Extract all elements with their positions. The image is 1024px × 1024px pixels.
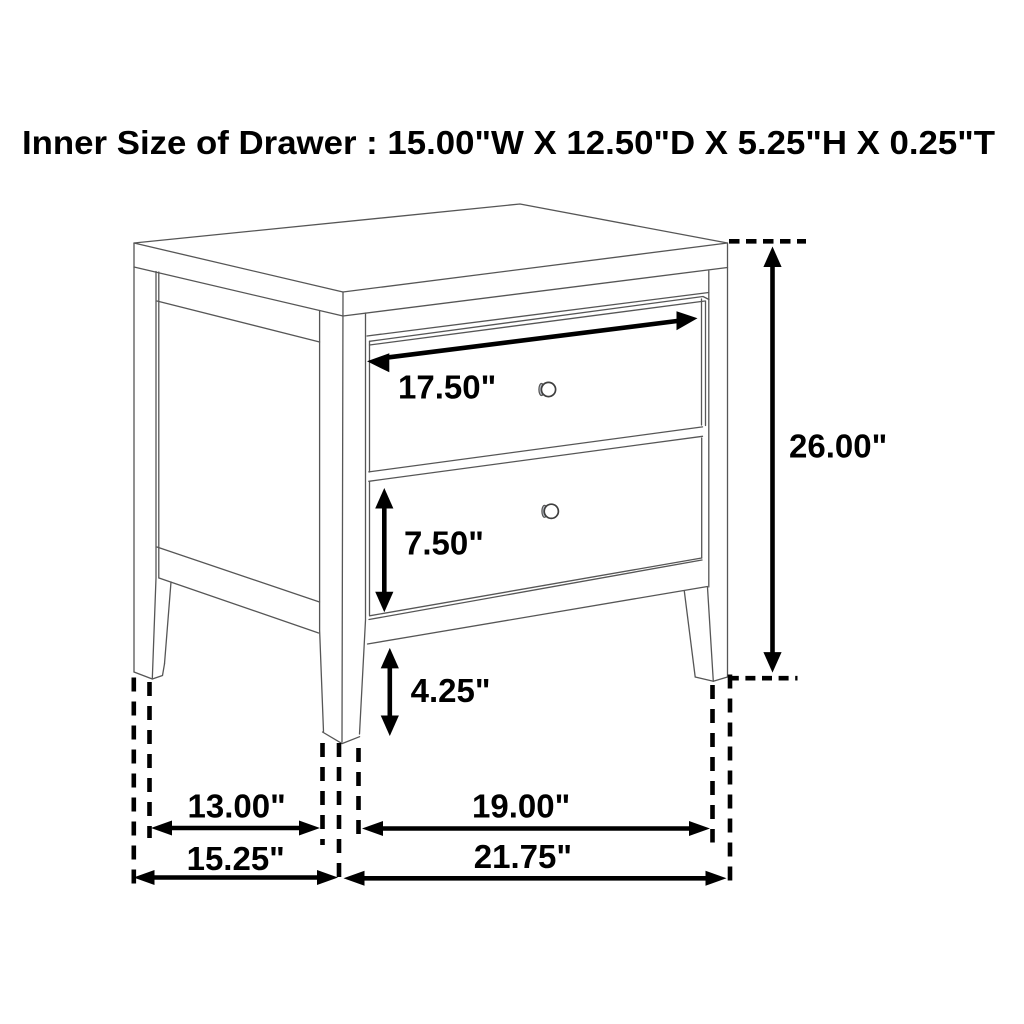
svg-text:4.25": 4.25" bbox=[411, 672, 491, 709]
svg-text:15.25": 15.25" bbox=[187, 840, 285, 877]
svg-text:21.75": 21.75" bbox=[474, 838, 572, 875]
svg-text:19.00": 19.00" bbox=[472, 788, 570, 825]
svg-text:7.50": 7.50" bbox=[404, 524, 484, 561]
svg-text:Inner Size of Drawer : 15.00"W: Inner Size of Drawer : 15.00"W X 12.50"D… bbox=[22, 124, 995, 161]
svg-text:13.00": 13.00" bbox=[188, 788, 286, 825]
svg-text:17.50": 17.50" bbox=[398, 368, 496, 405]
svg-text:26.00": 26.00" bbox=[789, 428, 887, 465]
